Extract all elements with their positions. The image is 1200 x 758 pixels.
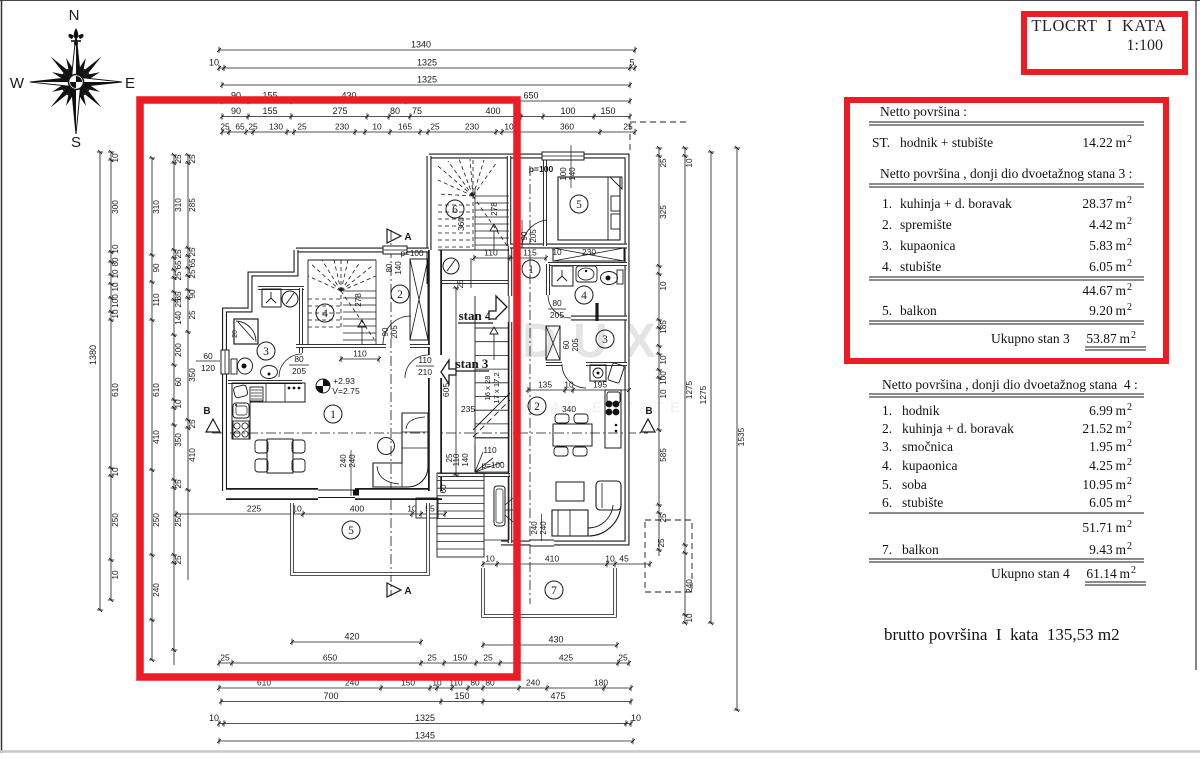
svg-text:stan 4: stan 4 — [459, 308, 492, 323]
svg-text:stan 3: stan 3 — [456, 356, 489, 371]
svg-text:278: 278 — [490, 202, 499, 216]
svg-text:240: 240 — [339, 454, 348, 468]
svg-text:1325: 1325 — [417, 58, 437, 68]
svg-text:350: 350 — [174, 433, 183, 447]
svg-text:9.43 m: 9.43 m — [1089, 542, 1126, 557]
svg-text:325: 325 — [659, 205, 668, 219]
svg-text:2: 2 — [1127, 438, 1132, 449]
svg-text:80: 80 — [294, 354, 304, 364]
svg-text:1: 1 — [330, 409, 336, 421]
svg-text:5.83 m: 5.83 m — [1089, 238, 1126, 253]
svg-text:10: 10 — [552, 247, 562, 257]
svg-text:kupaonica: kupaonica — [902, 458, 957, 473]
svg-text:6: 6 — [452, 204, 458, 216]
svg-text:25: 25 — [220, 122, 230, 132]
svg-text:p=100: p=100 — [401, 249, 424, 258]
svg-text:2.: 2. — [882, 217, 892, 232]
svg-text:2: 2 — [397, 289, 403, 301]
svg-text:balkon: balkon — [902, 542, 939, 557]
svg-text:205: 205 — [390, 325, 399, 339]
svg-text:285: 285 — [188, 198, 197, 212]
svg-text:10: 10 — [659, 281, 668, 291]
svg-text:6.05 m: 6.05 m — [1089, 259, 1126, 274]
svg-text:240: 240 — [152, 583, 161, 597]
svg-text:90: 90 — [520, 231, 529, 240]
svg-text:25: 25 — [174, 271, 183, 281]
svg-text:400: 400 — [350, 504, 365, 514]
svg-text:kupaonica: kupaonica — [900, 238, 955, 253]
svg-text:1: 1 — [528, 264, 534, 276]
svg-text:400: 400 — [485, 106, 500, 116]
svg-text:25: 25 — [427, 653, 437, 663]
svg-text:25: 25 — [456, 279, 465, 288]
svg-text:110: 110 — [418, 355, 432, 365]
svg-text:N: N — [69, 7, 80, 24]
svg-text:E: E — [125, 75, 135, 92]
svg-text:90: 90 — [381, 327, 390, 336]
svg-text:5: 5 — [348, 525, 354, 537]
svg-text:60: 60 — [439, 484, 448, 494]
svg-text:250: 250 — [174, 513, 183, 527]
svg-text:10: 10 — [685, 158, 694, 168]
svg-text:4: 4 — [322, 308, 328, 320]
svg-text:350: 350 — [188, 368, 197, 382]
svg-text:p=100: p=100 — [529, 164, 554, 174]
svg-text:180: 180 — [594, 678, 608, 688]
svg-text:16 x 28: 16 x 28 — [483, 376, 492, 401]
svg-text:45: 45 — [619, 554, 629, 564]
svg-text:240: 240 — [348, 454, 357, 468]
svg-text:soba: soba — [902, 477, 927, 492]
svg-text:1275: 1275 — [685, 380, 694, 399]
svg-text:4.: 4. — [882, 259, 892, 274]
svg-text:205: 205 — [292, 366, 306, 376]
svg-text:10: 10 — [631, 713, 641, 723]
svg-text:25: 25 — [174, 479, 183, 489]
svg-text:2: 2 — [1127, 302, 1132, 313]
svg-text:185: 185 — [659, 320, 668, 334]
svg-text:25: 25 — [188, 419, 197, 429]
svg-text:110: 110 — [483, 445, 497, 455]
svg-text:2: 2 — [1127, 258, 1132, 269]
svg-text:420: 420 — [344, 632, 359, 642]
svg-text:7.: 7. — [882, 542, 892, 557]
svg-text:10: 10 — [564, 380, 574, 390]
svg-text:6.99 m: 6.99 m — [1089, 403, 1126, 418]
svg-text:25: 25 — [659, 513, 668, 523]
svg-text:5: 5 — [576, 199, 582, 211]
svg-text:25: 25 — [220, 653, 230, 663]
svg-text:210: 210 — [418, 367, 432, 377]
svg-text:17 x 17,2: 17 x 17,2 — [492, 372, 501, 403]
svg-text:Netto površina , donji dio dvo: Netto površina , donji dio dvoetažnog st… — [882, 377, 1138, 392]
svg-text:2: 2 — [1127, 402, 1132, 413]
svg-text:110: 110 — [152, 293, 161, 306]
svg-text:5: 5 — [629, 58, 634, 68]
svg-text:100: 100 — [560, 106, 575, 116]
svg-text:140: 140 — [394, 261, 403, 275]
svg-text:340: 340 — [562, 404, 576, 414]
svg-text:140: 140 — [174, 311, 183, 325]
svg-text:10.95 m: 10.95 m — [1082, 477, 1126, 492]
svg-text:51.71 m: 51.71 m — [1082, 520, 1126, 535]
svg-text:165: 165 — [398, 122, 412, 132]
svg-text:10: 10 — [111, 309, 120, 319]
svg-text:A: A — [404, 232, 411, 243]
svg-text:90: 90 — [188, 289, 197, 299]
svg-text:2: 2 — [1127, 494, 1132, 505]
svg-text:205: 205 — [529, 229, 538, 243]
svg-text:1345: 1345 — [415, 731, 435, 741]
svg-text:250: 250 — [152, 513, 161, 527]
svg-text:2: 2 — [1131, 330, 1136, 341]
svg-text:2: 2 — [1127, 134, 1132, 145]
svg-text:kuhinja + d. boravak: kuhinja + d. boravak — [902, 421, 1014, 436]
svg-text:25: 25 — [174, 298, 183, 308]
svg-text:hodnik + stubište: hodnik + stubište — [900, 135, 993, 150]
svg-text:10: 10 — [174, 399, 183, 409]
svg-text:10: 10 — [659, 355, 668, 365]
svg-text:2: 2 — [1131, 565, 1136, 576]
svg-text:balkon: balkon — [900, 303, 937, 318]
svg-text:2: 2 — [1127, 282, 1132, 293]
svg-text:278: 278 — [354, 293, 363, 307]
svg-text:10: 10 — [372, 122, 382, 132]
svg-text:60: 60 — [562, 340, 571, 349]
svg-text:28.37 m: 28.37 m — [1082, 196, 1126, 211]
svg-text:275: 275 — [332, 106, 347, 116]
svg-text:60: 60 — [174, 377, 183, 387]
svg-text:10: 10 — [111, 269, 120, 279]
svg-text:80: 80 — [552, 298, 562, 308]
svg-text:3.: 3. — [882, 439, 892, 454]
svg-text:135: 135 — [538, 380, 552, 390]
svg-text:1.: 1. — [882, 403, 892, 418]
svg-text:80: 80 — [385, 263, 394, 272]
svg-text:235: 235 — [461, 404, 476, 414]
svg-text:25: 25 — [623, 122, 633, 132]
svg-text:p=100: p=100 — [482, 461, 505, 470]
svg-text:25: 25 — [188, 269, 197, 279]
svg-text:4: 4 — [581, 290, 587, 302]
svg-text:ST.: ST. — [872, 135, 890, 150]
svg-text:250: 250 — [111, 513, 120, 527]
svg-text:140: 140 — [461, 453, 470, 467]
svg-text:650: 650 — [523, 91, 538, 101]
svg-text:3.: 3. — [882, 238, 892, 253]
svg-text:75: 75 — [412, 106, 422, 116]
svg-text:410: 410 — [545, 554, 560, 564]
svg-text:1.: 1. — [882, 196, 892, 211]
svg-text:25: 25 — [174, 555, 183, 565]
svg-text:3: 3 — [263, 346, 269, 358]
svg-text:1380: 1380 — [88, 345, 98, 365]
svg-text:120: 120 — [201, 363, 215, 373]
svg-text:1.95 m: 1.95 m — [1089, 439, 1126, 454]
svg-text:DUX: DUX — [522, 315, 671, 368]
svg-text:100: 100 — [111, 294, 120, 308]
svg-text:1325: 1325 — [417, 75, 437, 85]
svg-text:410: 410 — [188, 448, 197, 462]
svg-text:5.: 5. — [882, 303, 892, 318]
svg-text:53.87 m: 53.87 m — [1086, 331, 1130, 346]
svg-text:hodnik: hodnik — [902, 403, 940, 418]
svg-text:110: 110 — [484, 248, 498, 258]
svg-text:TLOCRT I KATA: TLOCRT I KATA — [1031, 16, 1166, 35]
svg-text:65: 65 — [235, 122, 245, 132]
svg-text:44.67 m: 44.67 m — [1082, 283, 1126, 298]
svg-text:2: 2 — [1127, 476, 1132, 487]
svg-text:2: 2 — [1127, 541, 1132, 552]
svg-text:230: 230 — [582, 247, 596, 257]
svg-text:240: 240 — [685, 579, 694, 593]
svg-text:3: 3 — [602, 334, 608, 346]
svg-text:2: 2 — [1127, 237, 1132, 248]
svg-text:10: 10 — [605, 554, 615, 564]
svg-text:9.20 m: 9.20 m — [1089, 303, 1126, 318]
svg-text:310: 310 — [152, 200, 161, 214]
svg-text:65: 65 — [174, 260, 183, 270]
svg-text:25: 25 — [188, 310, 197, 320]
svg-text:1340: 1340 — [411, 40, 431, 50]
svg-text:205: 205 — [550, 310, 564, 320]
svg-text:20: 20 — [232, 330, 239, 338]
svg-text:W: W — [10, 75, 25, 92]
svg-text:140: 140 — [568, 167, 577, 181]
svg-text:240: 240 — [526, 678, 540, 688]
svg-text:10: 10 — [209, 713, 219, 723]
svg-text:195: 195 — [593, 380, 607, 390]
svg-text:150: 150 — [600, 106, 615, 116]
svg-text:10: 10 — [485, 554, 495, 564]
svg-text:2: 2 — [1127, 195, 1132, 206]
svg-text:2: 2 — [534, 401, 540, 413]
svg-text:475: 475 — [550, 691, 565, 701]
svg-text:smočnica: smočnica — [902, 439, 953, 454]
svg-text:A: A — [404, 586, 411, 597]
svg-text:brutto površina I kata 135,: brutto površina I kata 135,53 m2 — [884, 625, 1120, 644]
svg-text:Netto površina , donji dio dvo: Netto površina , donji dio dvoetažnog st… — [880, 166, 1132, 181]
svg-text:10: 10 — [209, 58, 219, 68]
svg-text:100: 100 — [659, 371, 668, 385]
svg-text:21.52 m: 21.52 m — [1082, 421, 1126, 436]
svg-text:V=2.75: V=2.75 — [332, 386, 360, 396]
svg-text:2: 2 — [1127, 216, 1132, 227]
svg-text:610: 610 — [152, 383, 161, 397]
svg-text:1275: 1275 — [698, 385, 708, 404]
svg-text:25: 25 — [445, 453, 454, 462]
svg-text:585: 585 — [659, 448, 668, 462]
svg-text:430: 430 — [548, 635, 563, 645]
svg-text:230: 230 — [335, 122, 349, 132]
svg-text:4.25 m: 4.25 m — [1089, 458, 1126, 473]
svg-text:10: 10 — [659, 389, 668, 399]
svg-text:10: 10 — [504, 122, 514, 132]
svg-text:14.22 m: 14.22 m — [1082, 135, 1126, 150]
svg-text:25: 25 — [297, 122, 307, 132]
svg-text:4.: 4. — [882, 458, 892, 473]
svg-text:410: 410 — [152, 430, 161, 444]
svg-text:240: 240 — [530, 521, 539, 535]
svg-text:150: 150 — [453, 653, 468, 663]
svg-text:stubište: stubište — [900, 259, 941, 274]
svg-text:130: 130 — [269, 122, 283, 132]
svg-text:80: 80 — [111, 257, 120, 267]
svg-text:200: 200 — [174, 343, 183, 357]
svg-text:25: 25 — [483, 653, 493, 663]
svg-text:25: 25 — [659, 158, 668, 168]
svg-text:kuhinja + d. boravak: kuhinja + d. boravak — [900, 196, 1012, 211]
svg-text:5.: 5. — [882, 477, 892, 492]
svg-text:1535: 1535 — [736, 427, 746, 446]
svg-text:7: 7 — [551, 585, 557, 597]
svg-text:2.: 2. — [882, 421, 892, 436]
svg-text:B: B — [203, 406, 210, 417]
svg-text:25: 25 — [248, 122, 258, 132]
svg-text:360: 360 — [457, 217, 466, 231]
svg-text:225: 225 — [247, 504, 262, 514]
svg-text:25: 25 — [430, 122, 440, 132]
svg-text:65: 65 — [188, 258, 197, 268]
svg-text:Ukupno stan 4: Ukupno stan 4 — [991, 566, 1070, 581]
svg-text:2: 2 — [1127, 457, 1132, 468]
svg-text:10: 10 — [111, 153, 120, 163]
svg-text:80: 80 — [390, 106, 400, 116]
svg-text:300: 300 — [111, 200, 120, 214]
svg-text:700: 700 — [323, 691, 338, 701]
svg-text:650: 650 — [323, 653, 338, 663]
svg-text:4.42 m: 4.42 m — [1089, 217, 1126, 232]
svg-text:155: 155 — [262, 106, 277, 116]
svg-text:60: 60 — [203, 351, 213, 361]
svg-text:2: 2 — [1127, 519, 1132, 530]
svg-text:90: 90 — [152, 263, 161, 273]
svg-text:+2.93: +2.93 — [333, 376, 355, 386]
svg-text:Netto površina :: Netto površina : — [880, 104, 967, 119]
svg-text:stubište: stubište — [902, 495, 943, 510]
svg-text:10: 10 — [407, 504, 417, 514]
svg-text:425: 425 — [559, 653, 574, 663]
svg-text:150: 150 — [454, 691, 469, 701]
svg-text:205: 205 — [571, 338, 580, 352]
svg-text:230: 230 — [465, 122, 479, 132]
svg-text:610: 610 — [111, 383, 120, 397]
svg-text:25: 25 — [188, 154, 197, 164]
svg-text:6.: 6. — [882, 495, 892, 510]
svg-text:10: 10 — [685, 613, 694, 623]
svg-text:10: 10 — [111, 467, 120, 477]
svg-text:25: 25 — [188, 247, 197, 257]
svg-text:25: 25 — [174, 154, 183, 164]
svg-text:110: 110 — [353, 349, 367, 359]
svg-text:25: 25 — [174, 249, 183, 259]
svg-text:90: 90 — [231, 106, 241, 116]
svg-text:10: 10 — [111, 570, 120, 580]
svg-text:6.05 m: 6.05 m — [1089, 495, 1126, 510]
svg-text:2: 2 — [1127, 420, 1132, 431]
svg-text:1325: 1325 — [415, 713, 435, 723]
svg-text:61.14 m: 61.14 m — [1086, 566, 1130, 581]
svg-text:spremište: spremište — [900, 217, 952, 232]
svg-text:S: S — [71, 134, 81, 151]
svg-text:240: 240 — [539, 521, 548, 535]
svg-text:25: 25 — [657, 538, 666, 548]
svg-text:310: 310 — [174, 198, 183, 212]
svg-text:115: 115 — [523, 248, 537, 258]
svg-text:10: 10 — [111, 282, 120, 292]
svg-text:10: 10 — [111, 244, 120, 254]
svg-text:100: 100 — [559, 167, 568, 181]
svg-text:25: 25 — [618, 653, 628, 663]
svg-text:Ukupno stan 3: Ukupno stan 3 — [991, 331, 1070, 346]
svg-text:B: B — [645, 406, 652, 417]
svg-text:1:100: 1:100 — [1127, 37, 1163, 54]
svg-text:360: 360 — [560, 122, 574, 132]
